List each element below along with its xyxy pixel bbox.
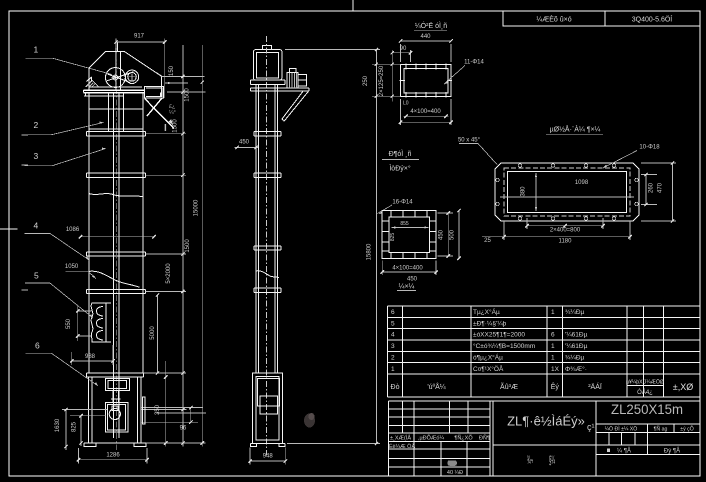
svg-text:¼ÆÈõ û×ó: ¼ÆÈõ û×ó <box>536 15 571 24</box>
svg-text:1286: 1286 <box>106 453 120 459</box>
svg-text:1500: 1500 <box>185 239 191 253</box>
svg-text:¶Ñ ag: ¶Ñ ag <box>654 426 668 433</box>
svg-text:5: 5 <box>34 271 39 281</box>
svg-text:ZL250X15m: ZL250X15m <box>611 401 683 417</box>
svg-text:4×100=400: 4×100=400 <box>410 109 441 115</box>
svg-text:µ¥¼þXÜ¼ÆÖØ: µ¥¼þXÜ¼ÆÖØ <box>626 379 664 386</box>
svg-text:'¼61Ðµ: '¼61Ðµ <box>565 332 588 339</box>
svg-text:1: 1 <box>34 45 39 55</box>
svg-text:1500: 1500 <box>185 88 191 102</box>
svg-text:2×400=800: 2×400=800 <box>550 228 581 234</box>
svg-text:C¤¶¹X°ÖÅ: C¤¶¹X°ÖÅ <box>473 364 504 373</box>
svg-text:¶Ñ¿XÕ: ¶Ñ¿XÕ <box>454 435 473 442</box>
svg-text:150: 150 <box>169 65 175 76</box>
svg-text:855: 855 <box>400 221 409 227</box>
svg-text:450: 450 <box>439 229 445 240</box>
svg-text:4×100=400: 4×100=400 <box>392 266 423 272</box>
svg-text:¼Ö ÐÌ ±¼ XÖ: ¼Ö ÐÌ ±¼ XÖ <box>605 426 638 433</box>
svg-text:6: 6 <box>35 341 40 351</box>
svg-text:5: 5 <box>391 320 395 327</box>
svg-text:,µÐÕÆó¼: ,µÐÕÆó¼ <box>418 435 445 442</box>
svg-text:ÌòÐý×°: ÌòÐý×° <box>389 164 410 173</box>
svg-text:±¸XÆ(ÌÅ: ±¸XÆ(ÌÅ <box>390 435 411 442</box>
svg-text:¾¼Ðµ: ¾¼Ðµ <box>565 309 585 316</box>
svg-text:1050: 1050 <box>65 264 79 270</box>
svg-text:470: 470 <box>658 182 664 193</box>
svg-text:40 ¼Ð: 40 ¼Ð <box>447 470 463 476</box>
svg-text:5×2000: 5×2000 <box>166 263 172 284</box>
svg-text:Êý: Êý <box>551 382 560 391</box>
svg-text:440: 440 <box>420 34 431 40</box>
svg-text:²ÄÁÏ: ²ÄÁÏ <box>588 382 602 391</box>
svg-text:1500: 1500 <box>173 119 179 133</box>
svg-text:±,XØ: ±,XØ <box>673 382 693 392</box>
svg-text:5000: 5000 <box>150 326 156 340</box>
svg-text:±óXX25¶1¶=2000: ±óXX25¶1¶=2000 <box>473 332 525 339</box>
svg-text:10-Φ18: 10-Φ18 <box>639 145 660 151</box>
svg-text:3: 3 <box>391 343 395 350</box>
svg-text:¾¬: ¾¬ <box>527 453 533 467</box>
svg-text:380: 380 <box>521 186 527 197</box>
svg-text:1X: 1X <box>551 366 560 373</box>
svg-text:550: 550 <box>66 318 72 329</box>
svg-text:Tµ¿X°Áµ: Tµ¿X°Áµ <box>473 307 500 316</box>
svg-text:96: 96 <box>180 426 187 432</box>
svg-text:6: 6 <box>551 332 555 339</box>
svg-text:11-Φ14: 11-Φ14 <box>464 60 484 66</box>
svg-text:µØ½Å·¨À¼ ¶×¼: µØ½Å·¨À¼ ¶×¼ <box>550 125 601 134</box>
svg-text:250: 250 <box>363 75 369 86</box>
svg-text:3: 3 <box>34 151 39 161</box>
svg-text:450: 450 <box>407 276 418 282</box>
svg-text:350: 350 <box>155 404 161 415</box>
svg-text:Ðý ¶Å: Ðý ¶Å <box>664 448 680 455</box>
svg-text:500: 500 <box>450 229 456 240</box>
svg-text:±ý çÕ: ±ý çÕ <box>680 426 694 433</box>
svg-text:15000: 15000 <box>194 199 200 216</box>
svg-text:'úºÅ¼: 'úºÅ¼ <box>427 382 445 391</box>
svg-text:Éè¼Æ ÖÅ: Éè¼Æ ÖÅ <box>389 443 416 450</box>
svg-text:825: 825 <box>72 421 78 432</box>
svg-text:'¼61Ðµ: '¼61Ðµ <box>565 343 588 350</box>
svg-text:917: 917 <box>134 34 145 40</box>
svg-text:¼°: ¼° <box>169 110 176 116</box>
svg-text:Φ¾Æ°·: Φ¾Æ°· <box>565 365 587 373</box>
svg-text:1: 1 <box>391 366 395 373</box>
svg-text:¼Ó²Ë óÌ¸ñ: ¼Ó²Ë óÌ¸ñ <box>415 21 447 30</box>
svg-text:16-Φ14: 16-Φ14 <box>392 200 413 206</box>
svg-text:1: 1 <box>551 354 555 361</box>
svg-text:260: 260 <box>649 182 655 193</box>
svg-text:Ðò: Ðò <box>391 384 400 391</box>
svg-text:±Ð¶·¼§'¼þ: ±Ð¶·¼§'¼þ <box>473 320 507 327</box>
svg-text:4: 4 <box>391 332 395 339</box>
svg-text:Ãû³Æ: Ãû³Æ <box>500 382 518 391</box>
svg-text:948: 948 <box>263 454 274 460</box>
svg-text:4: 4 <box>34 220 39 230</box>
svg-text:ZL¶·ê½ÌáÉý»: ZL¶·ê½ÌáÉý» <box>507 414 585 429</box>
svg-text:1: 1 <box>551 343 555 350</box>
svg-text:50 x 45°: 50 x 45° <box>458 138 481 144</box>
svg-text:ó¶µ¿X°Áµ: ó¶µ¿X°Áµ <box>473 352 503 361</box>
svg-text:1180: 1180 <box>559 239 573 245</box>
svg-text:2: 2 <box>34 120 39 130</box>
svg-text:2×125=250: 2×125=250 <box>379 65 385 96</box>
svg-text:1630: 1630 <box>55 418 61 432</box>
svg-text:ÓÅ4¿: ÓÅ4¿ <box>637 389 653 396</box>
svg-text:¾¼Ðµ: ¾¼Ðµ <box>565 354 585 361</box>
svg-text:15800: 15800 <box>367 243 373 260</box>
svg-text:1: 1 <box>551 309 555 316</box>
svg-text:ç¹: ç¹ <box>587 422 595 432</box>
svg-text:90: 90 <box>400 46 407 52</box>
svg-text:§¼: §¼ <box>549 453 555 467</box>
svg-text:°C±ó¾¼¶B=1500mm: °C±ó¾¼¶B=1500mm <box>473 342 535 350</box>
svg-text:25: 25 <box>484 238 491 244</box>
svg-text:¼ ¶Å: ¼ ¶Å <box>617 448 631 455</box>
svg-text:3Q400-5.6ÖÍ: 3Q400-5.6ÖÍ <box>632 15 673 24</box>
svg-text:¼×¼: ¼×¼ <box>399 283 415 290</box>
svg-text:450: 450 <box>239 140 250 146</box>
svg-text:6: 6 <box>391 309 395 316</box>
svg-text:988: 988 <box>85 354 96 360</box>
svg-text:2: 2 <box>391 354 395 361</box>
svg-text:ÐÑ¶: ÐÑ¶ <box>479 435 490 442</box>
svg-text:825: 825 <box>390 233 396 242</box>
svg-text:1098: 1098 <box>575 180 589 186</box>
svg-text:1086: 1086 <box>66 227 80 233</box>
svg-text:Ð¶óÌ ¸ñ: Ð¶óÌ ¸ñ <box>389 149 412 158</box>
svg-text:L0: L0 <box>403 101 409 107</box>
svg-text:I: I <box>164 123 167 134</box>
